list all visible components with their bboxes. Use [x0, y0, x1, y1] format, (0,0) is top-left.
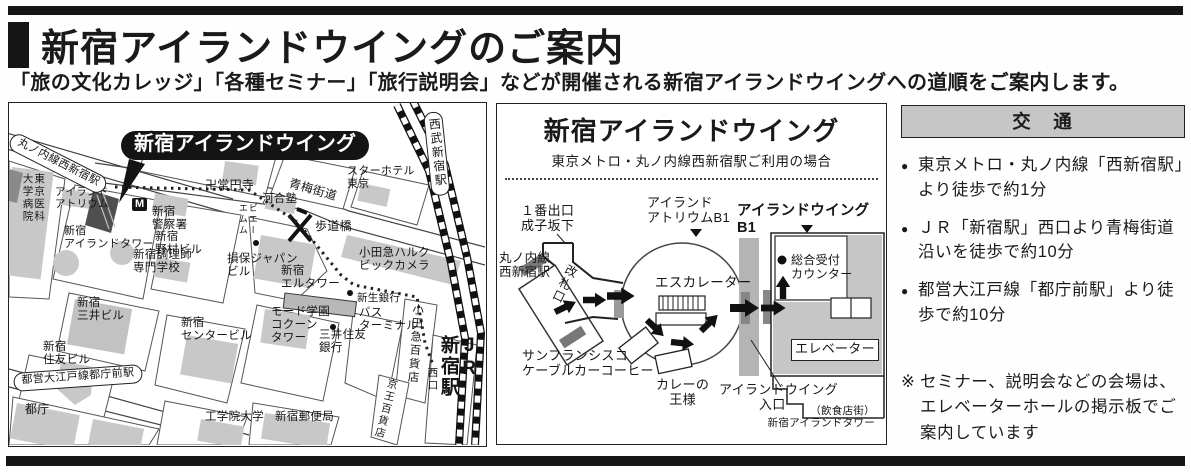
- route-map-subtitle: 東京メトロ・丸ノ内線西新宿駅ご利用の場合: [497, 150, 886, 170]
- top-rule: [8, 6, 1183, 15]
- dotted-rule: [505, 178, 878, 180]
- tokyo-metro-icon: M: [132, 198, 147, 211]
- jr-shinjuku-station: JR 新宿駅: [437, 335, 479, 441]
- restaurant-street-island-tower: （飲食店街） 新宿アイランドタワー: [757, 406, 875, 430]
- shinjuku-mitsui-bldg: 新宿 三井ビル: [77, 297, 124, 323]
- bullet-icon: ●: [901, 216, 918, 266]
- route-map-title: 新宿アイランドウイング: [497, 111, 886, 148]
- title-block-square: [8, 22, 29, 68]
- bullet-icon: ●: [901, 153, 918, 203]
- transport-item-text: ＪＲ「新宿駅」西口より青梅街道沿いを徒歩で約10分: [918, 216, 1185, 266]
- area-map-panel: 新宿アイランドウイング丸ノ内線西新宿駅東京医科大学病院アイランド アトリウム新宿…: [8, 102, 487, 447]
- header: 新宿アイランドウイングのご案内: [8, 17, 624, 72]
- exit-pointer-line: [557, 234, 565, 243]
- shinjuku-sumitomo-bldg: 新宿 住友ビル: [43, 341, 90, 367]
- transport-item: ● 都営大江戸線「都庁前駅」より徒歩で約10分: [901, 278, 1185, 328]
- reception-counter: 総合受付 カウンター: [791, 254, 853, 281]
- curry-no-osama: カレーの 王様: [656, 378, 709, 408]
- tocho: 都庁: [25, 403, 50, 417]
- shinjuku-l-tower: 新宿 エルタワー: [281, 265, 340, 291]
- tokyo-medical-university-hospital: 東京医科大学病院: [21, 173, 44, 223]
- marunouchi-nishishinjuku-station: 丸ノ内線 西新宿駅: [499, 251, 550, 280]
- transport-item: ● 東京メトロ・丸ノ内線「西新宿駅」より徒歩で約1分: [901, 153, 1185, 203]
- kawaijuku: 河合塾: [262, 193, 297, 206]
- shinjuku-post-office: 新宿郵便局: [275, 411, 334, 424]
- route-map-canvas: １番出口 成子坂下アイランド アトリウムB1アイランドウイングB1丸ノ内線 西新…: [497, 190, 886, 444]
- shinjuku-police-station: 新宿 警察署: [152, 206, 187, 232]
- exit1-narukozaka: １番出口 成子坂下: [521, 204, 574, 234]
- joenji-temple: 卍常円寺: [205, 179, 254, 193]
- area-callout: 新宿アイランドウイング: [121, 131, 369, 160]
- transport-item-text: 都営大江戸線「都庁前駅」より徒歩で約10分: [918, 278, 1185, 328]
- odakyu-halc-biccamera: 小田急ハルク ビックカメラ: [359, 247, 430, 273]
- star-hotel-tokyo: スターホテル 東京: [347, 165, 415, 190]
- smbc-bank: 三井住友 銀行: [319, 329, 366, 355]
- transport-list: ● 東京メトロ・丸ノ内線「西新宿駅」より徒歩で約1分 ● ＪＲ「新宿駅」西口より…: [901, 153, 1185, 328]
- page-subtitle: 「旅の文化カレッジ」「各種セミナー」「旅行説明会」などが開催される新宿アイランド…: [10, 66, 1129, 95]
- island-wing-b1: アイランドウイングB1: [737, 203, 886, 236]
- transport-item: ● ＪＲ「新宿駅」西口より青梅街道沿いを徒歩で約10分: [901, 216, 1185, 266]
- bullet-icon: ●: [901, 278, 918, 328]
- shinsei-bank: 新生銀行: [357, 293, 400, 305]
- transport-item-text: 東京メトロ・丸ノ内線「西新宿駅」より徒歩で約1分: [918, 153, 1185, 203]
- small-shops-label: ビエーエムム: [237, 203, 257, 239]
- escalator-label: エスカレーター: [655, 275, 752, 290]
- shinjuku-island-tower-label: 新宿 アイランドタワー: [64, 225, 154, 250]
- transport-header: 交 通: [901, 105, 1185, 138]
- transport-panel: 交 通 ● 東京メトロ・丸ノ内線「西新宿駅」より徒歩で約1分 ● ＪＲ「新宿駅」…: [901, 105, 1185, 446]
- island-atrium-b1: アイランド アトリウムB1: [647, 196, 730, 226]
- nishiguchi-exit: 西口: [426, 367, 438, 397]
- pedestrian-bridge-label: 歩道橋: [315, 220, 352, 234]
- escalator-icon: [656, 296, 706, 325]
- san-francisco-cable-car-coffee: サンフランシスコ ケーブルカーコーヒー: [522, 349, 654, 379]
- note-mark: ※: [901, 370, 920, 447]
- page-title: 新宿アイランドウイングのご案内: [41, 17, 624, 72]
- note-text: セミナー、説明会などの会場は、エレベーターホールの掲示板でご案内しています: [920, 370, 1185, 447]
- elevator-label: エレベーター: [791, 339, 879, 361]
- bottom-rule: [6, 456, 1185, 466]
- route-map-panel: 新宿アイランドウイング 東京メトロ・丸ノ内線西新宿駅ご利用の場合: [496, 103, 887, 445]
- shinjuku-center-bldg: 新宿 センタービル: [181, 317, 252, 343]
- shinjuku-chorishi-school: 新宿調理師 専門学校: [133, 249, 192, 275]
- seminar-note: ※ セミナー、説明会などの会場は、エレベーターホールの掲示板でご案内しています: [901, 370, 1185, 447]
- kogakuin-university: 工学院大学: [205, 411, 264, 424]
